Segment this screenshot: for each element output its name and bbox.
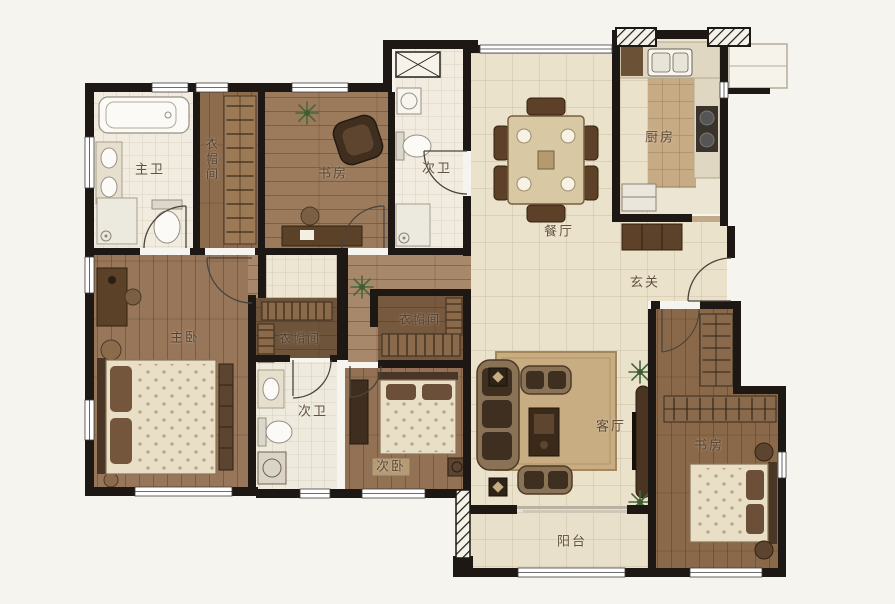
vanity-bath-bottom [258, 370, 284, 408]
window [518, 568, 625, 577]
room-label-closet-master: 衣帽间 [279, 330, 321, 347]
vanity-double-sink [96, 142, 122, 204]
window [720, 82, 728, 98]
plant-corridor [351, 276, 373, 298]
bathtub [99, 97, 189, 133]
window [292, 83, 348, 92]
master-bed [97, 340, 233, 487]
window [152, 83, 188, 92]
shower-bath-top [396, 204, 430, 246]
room-label-master-bedroom: 主卧 [170, 327, 200, 346]
room-label-closet-middle: 衣帽间 [399, 311, 441, 328]
window [85, 400, 94, 440]
floor-plan: 主卫 衣帽间 书房 次卫 厨房 餐厅 玄关 主卧 衣帽间 衣帽间 次卫 次卧 客… [0, 0, 895, 604]
room-label-kitchen: 厨房 [645, 127, 675, 146]
fridge [622, 184, 656, 211]
plant-study-top [296, 102, 318, 124]
tv-console [636, 386, 650, 498]
washbasin-bath-top [397, 88, 421, 114]
plant-living-top [629, 361, 651, 383]
room-label-bath-top: 次卫 [422, 158, 452, 177]
room-label-study-bottom: 书房 [694, 435, 724, 454]
window [196, 83, 228, 92]
window [690, 568, 762, 577]
window [362, 489, 425, 498]
wardrobe-top-closet [224, 96, 256, 244]
window [300, 489, 330, 498]
window [778, 452, 786, 478]
kitchen-door-mat [692, 216, 720, 222]
washer-bath-bottom [258, 452, 286, 484]
tv [632, 412, 636, 470]
room-label-bedroom-second: 次卧 [376, 456, 406, 475]
window [480, 45, 612, 53]
shower-master [97, 198, 137, 244]
dining-table-set [494, 98, 598, 222]
shaft-box [396, 52, 440, 77]
shoe-cabinet [622, 224, 682, 250]
room-label-closet-top: 衣帽间 [204, 138, 221, 183]
room-label-dining: 餐厅 [544, 221, 574, 240]
room-label-master-bath: 主卫 [135, 159, 165, 178]
stove [696, 106, 718, 152]
window [135, 487, 232, 496]
room-label-living: 客厅 [596, 416, 626, 435]
room-label-entry: 玄关 [630, 272, 660, 291]
room-label-study-top: 书房 [318, 163, 348, 182]
floor-plan-drawing [0, 0, 895, 604]
room-label-balcony: 阳台 [557, 531, 587, 550]
room-label-bath-bottom: 次卫 [298, 401, 328, 420]
window [85, 257, 94, 293]
window [85, 137, 94, 188]
